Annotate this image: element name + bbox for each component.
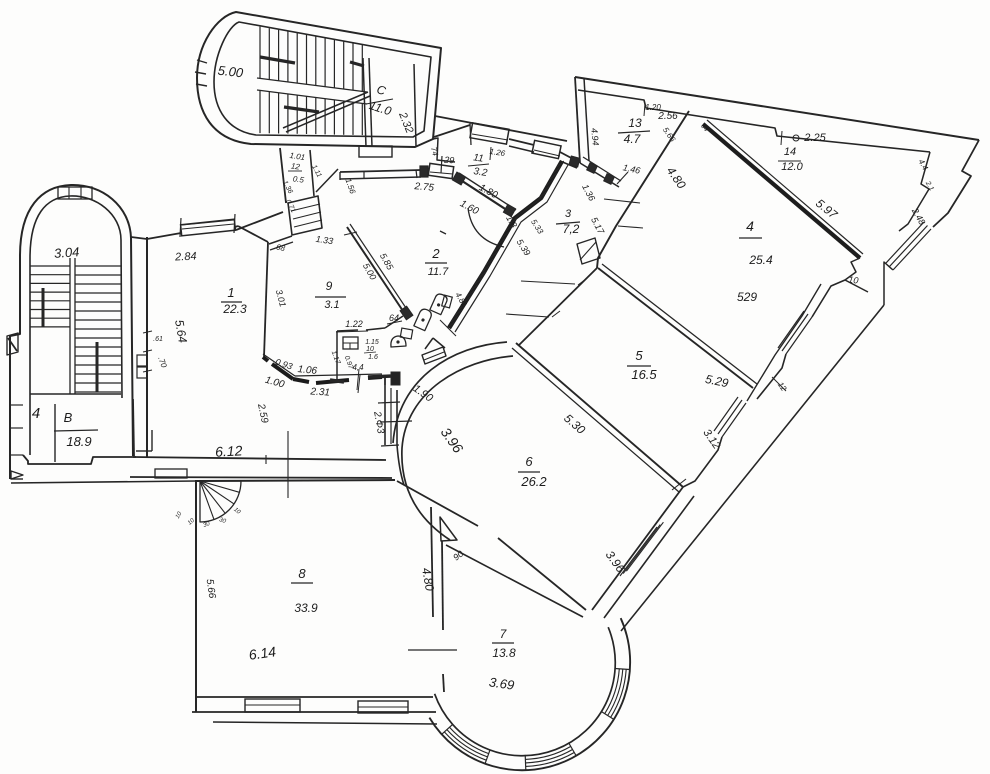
svg-text:3: 3 bbox=[565, 208, 572, 220]
svg-text:529: 529 bbox=[737, 290, 757, 304]
svg-text:2.31: 2.31 bbox=[309, 386, 330, 398]
svg-text:1.22: 1.22 bbox=[345, 319, 363, 329]
svg-text:2.25: 2.25 bbox=[803, 132, 826, 144]
svg-text:10: 10 bbox=[848, 274, 859, 285]
svg-text:.61: .61 bbox=[153, 336, 163, 343]
svg-text:3.1: 3.1 bbox=[324, 299, 339, 311]
svg-text:18.9: 18.9 bbox=[66, 434, 91, 449]
svg-text:11: 11 bbox=[472, 152, 484, 164]
svg-text:13: 13 bbox=[628, 116, 642, 130]
svg-text:11.7: 11.7 bbox=[428, 266, 449, 278]
svg-text:12.0: 12.0 bbox=[781, 161, 803, 173]
svg-text:26.2: 26.2 bbox=[520, 474, 547, 489]
svg-text:5.00: 5.00 bbox=[217, 63, 244, 81]
svg-text:1.6: 1.6 bbox=[368, 354, 378, 361]
svg-text:1.15: 1.15 bbox=[365, 339, 379, 346]
svg-text:2.75: 2.75 bbox=[413, 181, 435, 194]
svg-text:1: 1 bbox=[227, 285, 234, 300]
svg-text:3.2: 3.2 bbox=[473, 166, 489, 179]
svg-text:4.7: 4.7 bbox=[624, 132, 642, 146]
svg-text:1.06: 1.06 bbox=[297, 364, 318, 377]
svg-text:4.94: 4.94 bbox=[589, 128, 600, 146]
svg-text:7,2: 7,2 bbox=[563, 222, 580, 236]
svg-text:9: 9 bbox=[326, 279, 333, 293]
svg-text:2.84: 2.84 bbox=[174, 250, 197, 263]
svg-text:6: 6 bbox=[525, 454, 533, 469]
svg-text:14: 14 bbox=[784, 146, 796, 158]
svg-text:4: 4 bbox=[746, 218, 754, 234]
svg-text:2.56: 2.56 bbox=[657, 111, 678, 122]
svg-text:8: 8 bbox=[298, 566, 306, 581]
svg-text:13.8: 13.8 bbox=[492, 646, 516, 660]
svg-text:16.5: 16.5 bbox=[631, 367, 657, 382]
svg-text:33.9: 33.9 bbox=[294, 601, 318, 615]
svg-text:6.12: 6.12 bbox=[215, 442, 243, 459]
svg-text:25.4: 25.4 bbox=[748, 253, 773, 267]
svg-text:29: 29 bbox=[443, 155, 455, 166]
svg-text:22.3: 22.3 bbox=[222, 302, 247, 316]
svg-text:4: 4 bbox=[32, 405, 40, 422]
svg-text:5: 5 bbox=[635, 348, 643, 363]
svg-text:2: 2 bbox=[431, 246, 440, 261]
svg-text:B: B bbox=[64, 410, 73, 425]
svg-text:0.5: 0.5 bbox=[292, 174, 305, 185]
svg-text:3.04: 3.04 bbox=[54, 244, 80, 261]
svg-text:12: 12 bbox=[290, 161, 301, 171]
